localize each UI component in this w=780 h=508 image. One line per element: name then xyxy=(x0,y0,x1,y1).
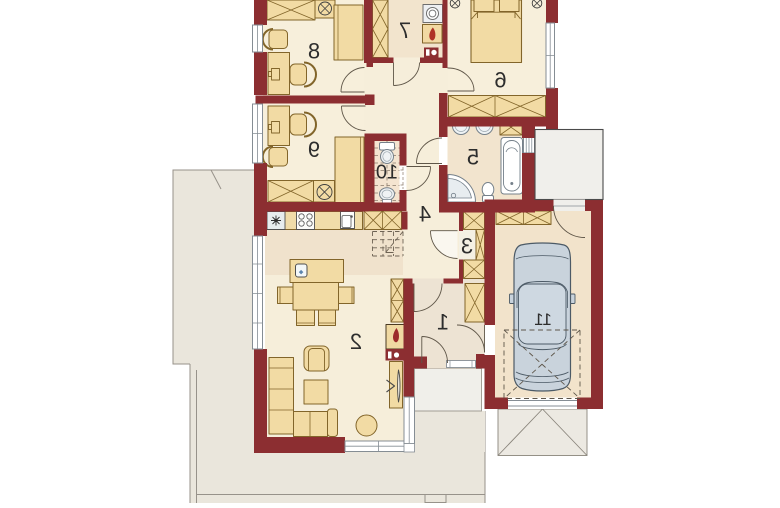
svg-text:11: 11 xyxy=(534,310,552,329)
svg-text:8: 8 xyxy=(308,39,320,64)
svg-text:5: 5 xyxy=(467,145,479,170)
svg-text:7: 7 xyxy=(399,18,411,43)
svg-text:2: 2 xyxy=(350,329,362,354)
svg-text:10: 10 xyxy=(376,162,398,184)
svg-text:1: 1 xyxy=(437,310,449,335)
svg-text:3: 3 xyxy=(461,234,473,259)
svg-text:6: 6 xyxy=(494,68,506,93)
svg-text:4: 4 xyxy=(419,202,431,227)
svg-text:9: 9 xyxy=(308,137,320,162)
